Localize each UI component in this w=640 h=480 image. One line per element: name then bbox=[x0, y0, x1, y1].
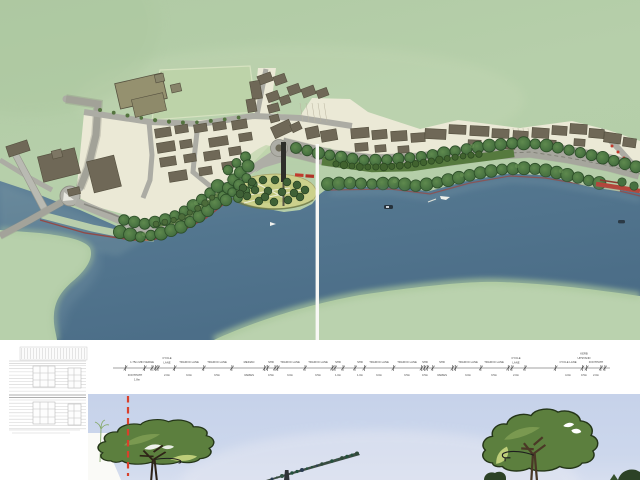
svg-text:KERB: KERB bbox=[580, 352, 588, 356]
svg-text:TRAFFIC LANE: TRAFFIC LANE bbox=[179, 360, 199, 364]
svg-text:3.0m: 3.0m bbox=[376, 373, 383, 377]
svg-text:TRAFFIC LANE: TRAFFIC LANE bbox=[280, 360, 300, 364]
svg-text:TRAFFIC LANE: TRAFFIC LANE bbox=[308, 360, 328, 364]
svg-text:3.0m: 3.0m bbox=[465, 373, 472, 377]
svg-text:2.0m: 2.0m bbox=[593, 373, 600, 377]
svg-text:VARIES: VARIES bbox=[437, 373, 447, 377]
svg-text:UPSTAND: UPSTAND bbox=[578, 356, 591, 360]
svg-text:1.8m: 1.8m bbox=[134, 378, 141, 382]
svg-text:3.5m: 3.5m bbox=[214, 373, 221, 377]
svg-text:LANE: LANE bbox=[163, 360, 170, 364]
svg-text:TRAFFIC LANE: TRAFFIC LANE bbox=[458, 360, 478, 364]
svg-text:MEDIAN: MEDIAN bbox=[244, 360, 255, 364]
svg-text:2.0m: 2.0m bbox=[513, 373, 520, 377]
svg-text:LANE: LANE bbox=[512, 360, 519, 364]
svg-text:SHD: SHD bbox=[268, 360, 274, 364]
svg-text:TRAFFIC LANE: TRAFFIC LANE bbox=[397, 360, 417, 364]
svg-text:CYCLE: CYCLE bbox=[511, 356, 520, 360]
svg-text:FOOTPATH: FOOTPATH bbox=[128, 373, 143, 377]
svg-text:SHD: SHD bbox=[439, 360, 445, 364]
svg-text:CYCLE LANE: CYCLE LANE bbox=[559, 360, 576, 364]
svg-text:SHD: SHD bbox=[335, 360, 341, 364]
svg-text:3.5m: 3.5m bbox=[404, 373, 411, 377]
svg-text:0.5m: 0.5m bbox=[422, 373, 429, 377]
svg-text:0.5m: 0.5m bbox=[581, 373, 588, 377]
svg-text:3.0m: 3.0m bbox=[287, 373, 294, 377]
svg-text:1.0m: 1.0m bbox=[335, 373, 342, 377]
svg-text:CYCLE: CYCLE bbox=[162, 356, 171, 360]
svg-text:4.0m: 4.0m bbox=[565, 373, 572, 377]
svg-text:3.0m: 3.0m bbox=[186, 373, 193, 377]
svg-text:3.5m: 3.5m bbox=[491, 373, 498, 377]
svg-text:1.0m: 1.0m bbox=[357, 373, 364, 377]
svg-text:2.0m: 2.0m bbox=[164, 373, 171, 377]
svg-text:0.5m: 0.5m bbox=[268, 373, 275, 377]
svg-text:TRAFFIC LANE: TRAFFIC LANE bbox=[369, 360, 389, 364]
svg-text:VARIES: VARIES bbox=[244, 373, 254, 377]
svg-text:TRAFFIC LANE: TRAFFIC LANE bbox=[484, 360, 504, 364]
svg-text:SHD: SHD bbox=[357, 360, 363, 364]
svg-text:3.5m: 3.5m bbox=[315, 373, 322, 377]
svg-text:SHD: SHD bbox=[422, 360, 428, 364]
svg-text:FOOTPATH: FOOTPATH bbox=[589, 360, 604, 364]
svg-text:TRAFFIC LANE: TRAFFIC LANE bbox=[207, 360, 227, 364]
svg-text:1.75m MIN VERGE: 1.75m MIN VERGE bbox=[130, 360, 154, 364]
